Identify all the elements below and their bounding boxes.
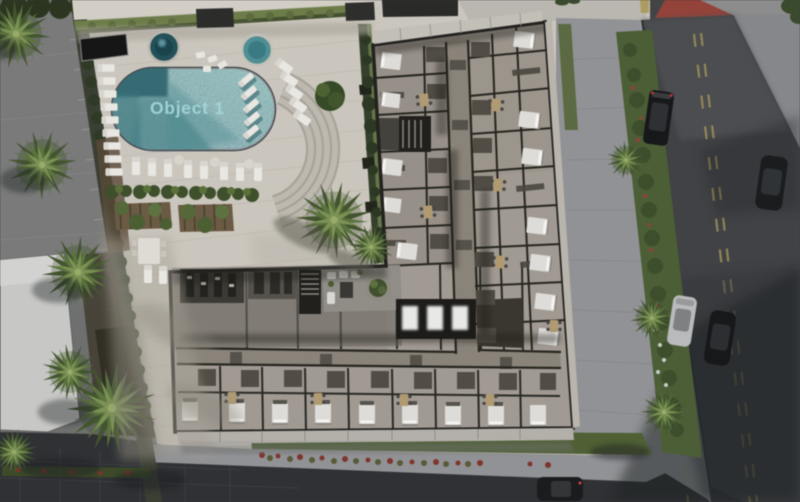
- svg-text:Object 1: Object 1: [150, 98, 225, 118]
